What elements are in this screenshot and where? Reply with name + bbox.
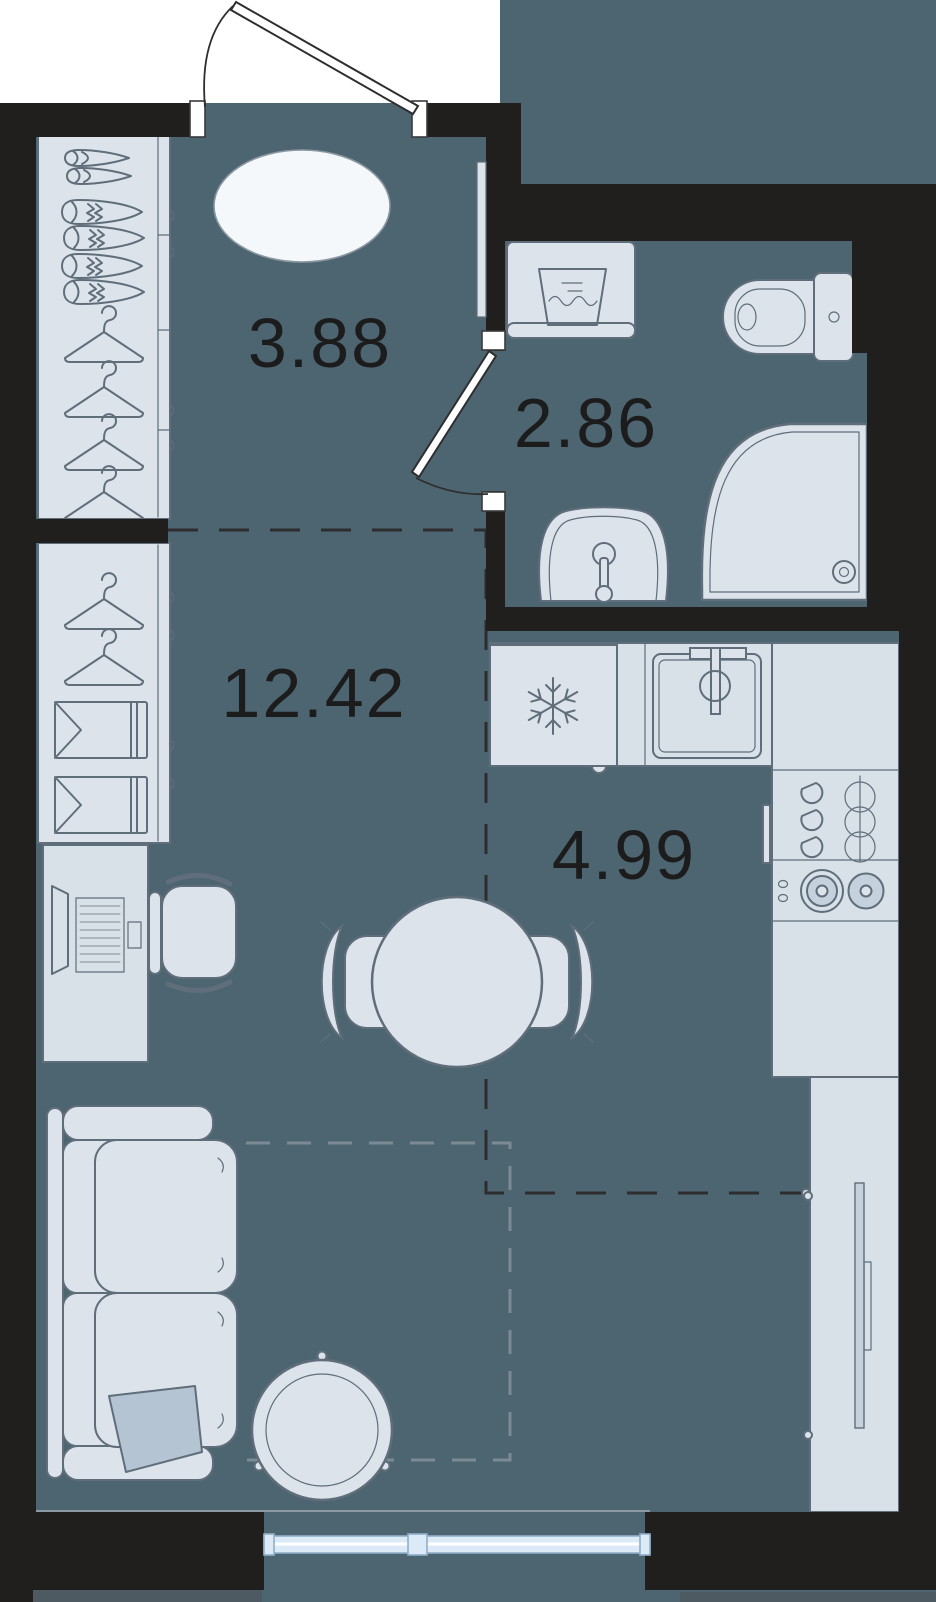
fridge [490,645,617,773]
exterior-ledge-right [680,1592,936,1602]
toilet [723,273,853,361]
hall-wardrobe [38,130,174,522]
washing-machine [507,242,635,338]
bathroom-sink [539,507,668,602]
tv-cabinet [804,1077,899,1512]
floor-plan: 3.88 2.86 12.42 4.99 [0,0,936,1602]
room-label-kitchen: 4.99 [552,816,696,894]
cabinet-handle [763,805,770,863]
desk-laptop [43,845,148,1062]
oval-rug [214,150,390,262]
floor-plan-svg: 3.88 2.86 12.42 4.99 [0,0,936,1602]
exterior-ledge-left [33,1590,262,1602]
room-label-bathroom: 2.86 [514,384,658,462]
living-closet [38,543,174,843]
dining-table [372,897,542,1067]
kitchen-counter-column [763,643,899,1077]
sofa [47,1106,237,1480]
tv [855,1183,864,1428]
mirror [477,162,486,317]
room-label-living: 12.42 [221,654,406,732]
room-label-hall: 3.88 [248,304,392,382]
